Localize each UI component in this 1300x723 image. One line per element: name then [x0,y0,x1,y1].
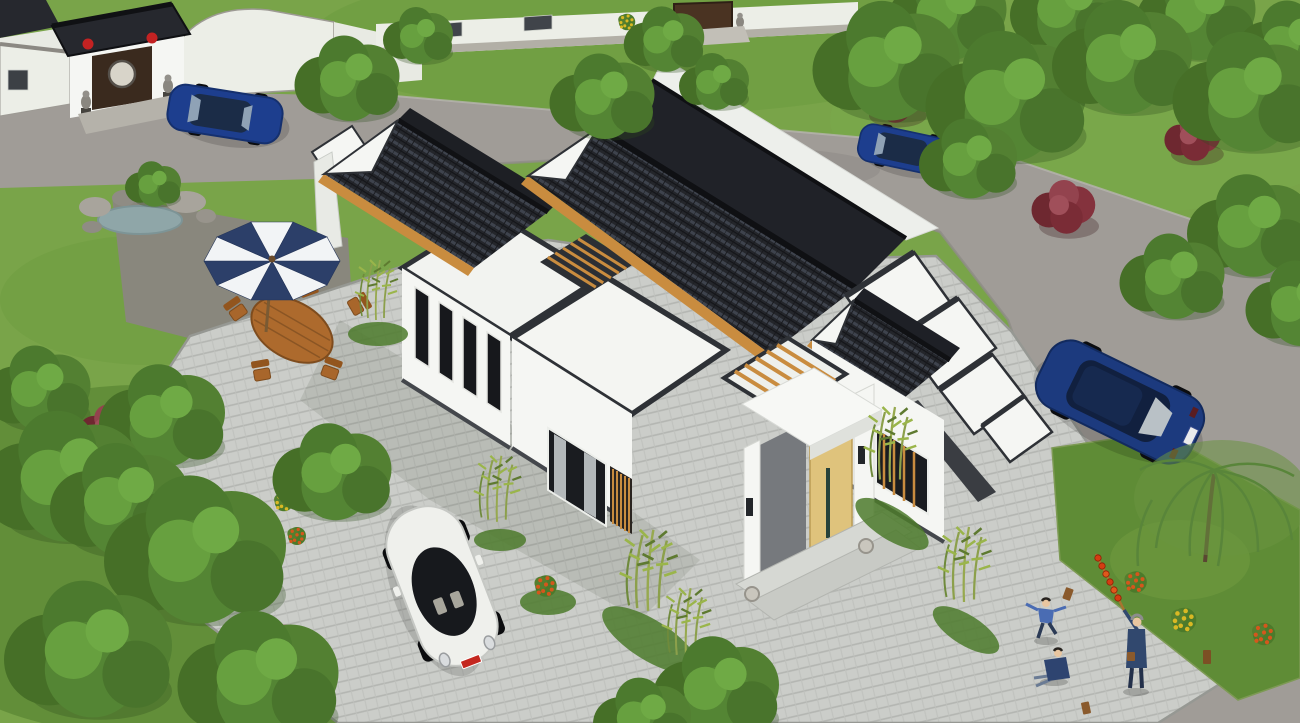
planting-bed [348,322,408,346]
body [1044,657,1070,681]
parasol-finial [269,256,276,263]
tanghulu [1111,587,1117,593]
slit-window [463,317,477,397]
garden-ornament [1203,650,1211,664]
tanghulu [1115,595,1121,601]
jacket [1038,608,1054,624]
wall-sconce [858,446,865,464]
head [1133,618,1142,627]
slit-window [487,332,501,412]
yellow-flower-bush [1171,608,1196,633]
satchel [1127,652,1135,661]
tanghulu [1107,579,1113,585]
coat [1126,629,1147,668]
tanghulu [1095,555,1101,561]
lattice-window [524,15,552,31]
orange-flower-bush [534,575,556,597]
rendering-stage: Aerial view of a modern single-storey Ch… [0,0,1300,723]
pond-water [98,206,182,234]
red-lantern [147,33,158,44]
stone-drum [745,587,759,601]
slit-window [439,302,453,382]
scene-rendering [0,0,1300,723]
orange-flower-bush [1252,623,1275,646]
stone-drum [859,539,873,553]
slit-window [415,287,429,367]
orange-flower-bush [287,527,306,545]
boulder [82,221,102,233]
curtain [584,452,596,518]
lattice-window [8,70,28,90]
curtain [554,434,566,500]
tanghulu [1103,571,1109,577]
orange-flower-bush [1124,571,1146,593]
planting-bed [474,529,526,551]
red-lantern [83,39,94,50]
boulder [196,209,216,223]
wall-sconce [746,498,753,516]
moon-window [109,61,135,87]
tanghulu [1099,563,1105,569]
boulder [79,197,111,217]
